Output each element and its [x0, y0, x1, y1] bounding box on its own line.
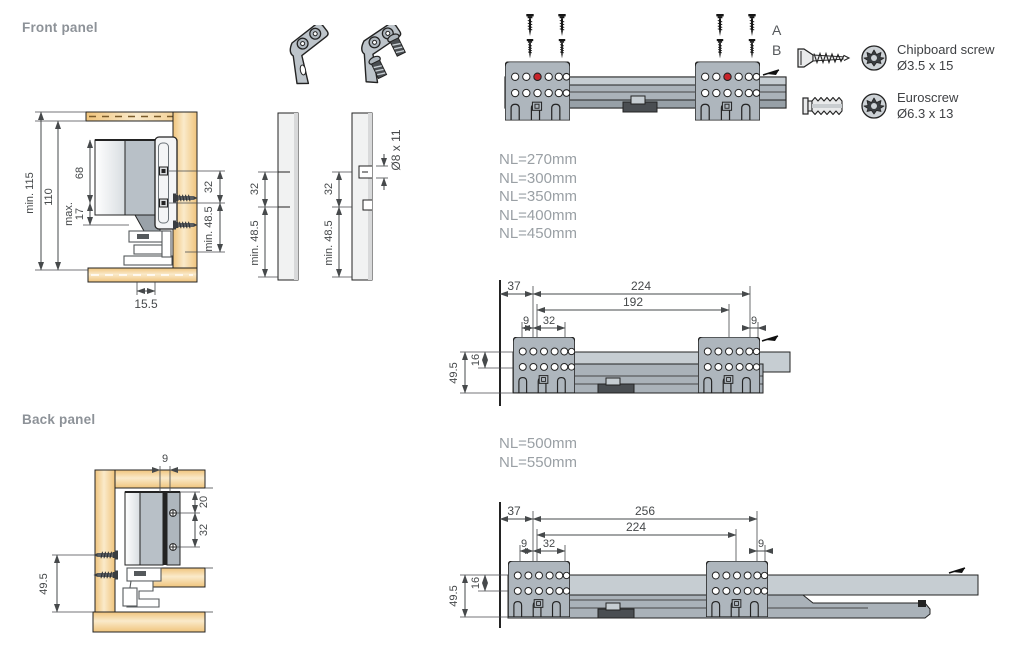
front-bracket-icons	[258, 25, 408, 110]
dim-37: 37	[507, 504, 521, 518]
strip2-dim-32: 32	[323, 183, 335, 195]
dim-32-right: 32	[203, 181, 215, 193]
nl-item: NL=270mm	[499, 151, 577, 170]
nominal-length-list-long: NL=500mm NL=550mm	[499, 435, 577, 472]
screw-row-a-label: A	[772, 22, 781, 38]
nl-item: NL=300mm	[499, 170, 577, 189]
strip-drilled: 32 min. 48.5 Ø8 x 11	[323, 113, 403, 280]
installation-diagram-page: Front panel Back panel	[0, 0, 1013, 649]
euroscrew-icon	[797, 93, 851, 119]
front-panel-section-title: Front panel	[22, 20, 98, 35]
nl-item: NL=450mm	[499, 225, 577, 244]
dim-min-115: min. 115	[25, 172, 36, 213]
front-bracket-icon	[275, 25, 345, 89]
euroscrew-name: Euroscrew	[897, 90, 958, 106]
slide-dimension-drawing-short: 37 224 192 9 32 9 49.5 16	[448, 276, 798, 411]
strip1-dim-min-48-5: min. 48.5	[249, 220, 261, 265]
rear-mounting-bracket	[706, 561, 768, 617]
dim-16: 16	[470, 577, 482, 589]
nl-item: NL=500mm	[499, 435, 577, 454]
euroscrew-legend: Euroscrew Ø6.3 x 13	[797, 90, 958, 122]
front-bracket-with-screws-icon	[347, 25, 408, 88]
strip-plain: 32 min. 48.5	[249, 113, 298, 280]
dim-68: 68	[74, 167, 86, 179]
front-mounting-bracket	[513, 337, 575, 393]
dim-49-5: 49.5	[38, 573, 50, 594]
rear-mounting-bracket	[695, 62, 760, 121]
height-extension-lines	[460, 352, 513, 393]
back-height-dimension	[52, 555, 98, 612]
chipboard-screw-legend: Chipboard screw Ø3.5 x 15	[797, 42, 995, 74]
dim-9-right: 9	[751, 315, 757, 327]
front-mounting-bracket	[505, 62, 570, 121]
torx-head-icon	[860, 92, 888, 120]
front-mounting-bracket	[508, 561, 570, 617]
strip1-dim-32: 32	[249, 183, 261, 195]
nominal-length-list-short: NL=270mm NL=300mm NL=350mm NL=400mm NL=4…	[499, 151, 577, 244]
chipboard-screw-icon	[797, 45, 851, 71]
drill-hole-dimension	[376, 154, 388, 190]
slide-dimension-drawing-long: 37 256 224 9 32 9 49.5 16	[448, 500, 993, 635]
chipboard-screw-size: Ø3.5 x 15	[897, 58, 995, 74]
strip2-dim-min-48-5: min. 48.5	[323, 220, 335, 265]
nl-item: NL=350mm	[499, 188, 577, 207]
slide-assembly-top-view	[495, 12, 795, 127]
dim-min-48-5: min. 48.5	[203, 206, 215, 251]
euroscrew-size: Ø6.3 x 13	[897, 106, 958, 122]
rear-bracket-assembly	[123, 492, 180, 607]
torx-head-icon	[860, 44, 888, 72]
front-bottom-dimension	[137, 282, 155, 295]
dim-110: 110	[43, 188, 55, 206]
back-panel-cross-section: 9 20 32 49.5	[30, 440, 220, 645]
dim-max-17: 17	[74, 208, 86, 220]
nl-item: NL=550mm	[499, 454, 577, 473]
dim-224: 224	[631, 279, 651, 293]
back-panel-section-title: Back panel	[22, 412, 95, 427]
dim-256: 256	[635, 504, 655, 518]
dim-32: 32	[543, 538, 555, 550]
dim-32: 32	[543, 315, 555, 327]
mounting-screws	[526, 14, 755, 58]
screw-row-b-label: B	[772, 42, 781, 58]
drawer-front-profile	[95, 137, 177, 265]
dim-224: 224	[626, 520, 646, 534]
dim-37: 37	[507, 279, 521, 293]
dim-16: 16	[470, 354, 482, 366]
dim-9-left: 9	[523, 315, 529, 327]
dim-20: 20	[198, 496, 210, 508]
dim-192: 192	[623, 295, 643, 309]
dim-9-left: 9	[521, 538, 527, 550]
dim-9-right: 9	[758, 538, 764, 550]
dim-49-5: 49.5	[448, 585, 460, 606]
chipboard-screw-name: Chipboard screw	[897, 42, 995, 58]
dim-15-5: 15.5	[134, 297, 158, 311]
dim-9: 9	[162, 453, 168, 465]
dim-drill-hole: Ø8 x 11	[389, 129, 403, 170]
front-panel-cross-section: min. 115 110 68 max. 17 32 min. 48.5 15.…	[25, 105, 240, 320]
dim-32: 32	[198, 524, 210, 536]
rear-mounting-bracket	[698, 337, 760, 393]
panel-drilling-strips: 32 min. 48.5 32 min. 48.5	[248, 108, 423, 300]
nl-item: NL=400mm	[499, 207, 577, 226]
dim-49-5: 49.5	[448, 362, 460, 383]
